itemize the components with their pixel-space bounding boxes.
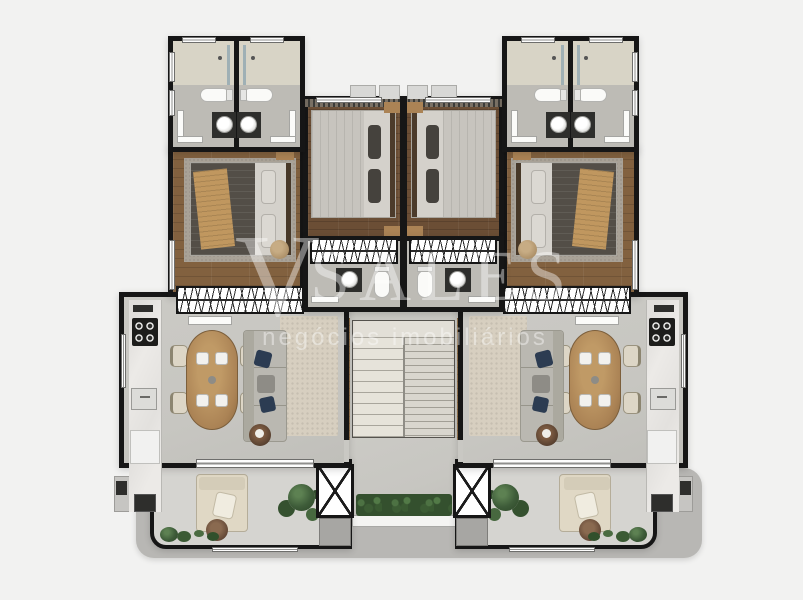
headboard bbox=[412, 111, 417, 217]
lounge-back-cushion bbox=[199, 477, 245, 490]
sofa-seat-line bbox=[521, 367, 553, 368]
balcony-railing-window bbox=[509, 547, 595, 552]
throw-pillow bbox=[259, 396, 277, 414]
round-side-table bbox=[206, 519, 228, 541]
floor-plan-render: V SALES negócios imobiliários bbox=[0, 0, 803, 600]
stair-flight-right bbox=[405, 337, 454, 437]
coffee-table-tray bbox=[542, 429, 551, 438]
toilet bbox=[417, 270, 433, 298]
place-setting bbox=[215, 394, 228, 407]
headboard bbox=[286, 163, 291, 255]
centerpiece bbox=[208, 376, 216, 384]
headboard bbox=[516, 163, 521, 255]
pouf bbox=[518, 240, 537, 259]
toilet-tank bbox=[417, 266, 433, 272]
throw-pillow bbox=[532, 375, 550, 393]
window bbox=[521, 37, 555, 43]
burner-icon bbox=[652, 322, 660, 330]
bed-pillow bbox=[426, 169, 439, 203]
stair-flight-left bbox=[353, 337, 404, 437]
sofa-seat-line bbox=[254, 367, 286, 368]
throw-pillow bbox=[257, 375, 275, 393]
toilet-tank bbox=[240, 89, 247, 101]
pouf bbox=[270, 240, 289, 259]
bed bbox=[311, 110, 396, 218]
area-rug bbox=[280, 316, 338, 436]
sink-faucet-icon bbox=[140, 396, 150, 398]
bath-shelf bbox=[311, 296, 339, 303]
window bbox=[121, 334, 126, 388]
console-sideboard bbox=[188, 316, 232, 325]
wardrobe-right bbox=[503, 286, 631, 314]
sofa-back bbox=[553, 331, 563, 441]
plant bbox=[288, 484, 315, 511]
shower-head-icon bbox=[251, 56, 255, 60]
throw-pillow bbox=[534, 349, 553, 368]
burner-icon bbox=[135, 322, 143, 330]
bed-pillow bbox=[426, 125, 439, 159]
sofa-back bbox=[244, 331, 254, 441]
bed-pillow bbox=[368, 169, 381, 203]
bath-counter bbox=[511, 136, 537, 143]
sliding-door-threshold bbox=[493, 459, 611, 468]
shower-glass bbox=[243, 45, 246, 85]
lounge-pillow bbox=[212, 491, 238, 520]
centerpiece bbox=[591, 376, 599, 384]
dining-chair bbox=[623, 392, 641, 414]
shaft-stub bbox=[456, 518, 488, 546]
burner-icon bbox=[663, 334, 671, 342]
toilet bbox=[374, 270, 390, 298]
stair-divider bbox=[403, 337, 405, 437]
shower-glass bbox=[561, 45, 564, 85]
place-setting bbox=[598, 394, 611, 407]
burner-icon bbox=[663, 322, 671, 330]
wardrobe-left bbox=[176, 286, 304, 314]
window bbox=[316, 97, 382, 103]
shower-head-icon bbox=[584, 56, 588, 60]
sink bbox=[341, 271, 358, 288]
window bbox=[425, 97, 491, 103]
staircase bbox=[352, 320, 455, 438]
kitchen-hood bbox=[133, 305, 153, 312]
kitchen-hood bbox=[654, 305, 674, 312]
bed-pillow bbox=[531, 170, 546, 204]
place-setting bbox=[196, 352, 209, 365]
place-setting bbox=[579, 352, 592, 365]
toilet-tank bbox=[560, 89, 567, 101]
shaft-x-left bbox=[316, 464, 354, 518]
plant-row bbox=[629, 527, 647, 542]
place-setting bbox=[598, 352, 611, 365]
window bbox=[169, 52, 175, 82]
burner-icon bbox=[146, 334, 154, 342]
window bbox=[182, 37, 216, 43]
sink-faucet-icon bbox=[657, 396, 667, 398]
window bbox=[632, 90, 638, 116]
cooktop bbox=[132, 318, 158, 346]
balcony-railing-window bbox=[212, 547, 298, 552]
window bbox=[632, 52, 638, 82]
dining-chair bbox=[623, 345, 641, 367]
fridge bbox=[647, 430, 677, 464]
place-setting bbox=[215, 352, 228, 365]
bath-shelf bbox=[468, 296, 496, 303]
burner-icon bbox=[135, 334, 143, 342]
nightstand bbox=[407, 102, 423, 113]
oven bbox=[134, 494, 156, 512]
door-opening bbox=[458, 440, 463, 462]
burner-icon bbox=[652, 334, 660, 342]
bath-counter bbox=[270, 136, 296, 143]
burner-icon bbox=[146, 322, 154, 330]
plant bbox=[492, 484, 519, 511]
nightstand bbox=[384, 102, 400, 113]
utility-equipment bbox=[680, 481, 691, 495]
walkway-strip bbox=[352, 515, 456, 527]
plant-row bbox=[160, 527, 178, 542]
throw-pillow bbox=[532, 396, 550, 414]
window bbox=[681, 334, 686, 388]
door-opening bbox=[344, 440, 349, 462]
headboard bbox=[390, 111, 395, 217]
area-rug bbox=[469, 316, 527, 436]
window bbox=[589, 37, 623, 43]
shower-head-icon bbox=[552, 56, 556, 60]
wardrobe-center-right bbox=[409, 238, 497, 264]
lounge-back-cushion bbox=[564, 477, 610, 490]
duvet bbox=[443, 111, 495, 217]
utility-equipment bbox=[116, 481, 127, 495]
toilet bbox=[243, 88, 273, 102]
sink bbox=[550, 116, 567, 133]
kitchen-sink bbox=[650, 388, 676, 410]
place-setting bbox=[579, 394, 592, 407]
console-sideboard bbox=[575, 316, 619, 325]
shower-head-icon bbox=[218, 56, 222, 60]
party-wall bbox=[400, 96, 407, 312]
shower-glass bbox=[227, 45, 230, 85]
window bbox=[169, 240, 175, 290]
hedge-planter bbox=[356, 494, 452, 516]
sliding-door-threshold bbox=[196, 459, 314, 468]
fridge bbox=[130, 430, 160, 464]
stair-landing bbox=[353, 321, 454, 337]
throw-pillow bbox=[253, 349, 272, 368]
oven bbox=[651, 494, 673, 512]
toilet bbox=[577, 88, 607, 102]
sink bbox=[574, 116, 591, 133]
wardrobe-center-left bbox=[310, 238, 398, 264]
sink bbox=[216, 116, 233, 133]
bath-counter bbox=[604, 136, 630, 143]
cooktop bbox=[649, 318, 675, 346]
shower-glass bbox=[577, 45, 580, 85]
duvet bbox=[312, 111, 364, 217]
lounge-pillow bbox=[574, 491, 600, 520]
window bbox=[632, 240, 638, 290]
toilet-tank bbox=[226, 89, 233, 101]
coffee-table-tray bbox=[255, 429, 264, 438]
shaft-x-right bbox=[453, 464, 491, 518]
window bbox=[169, 90, 175, 116]
bed-pillow bbox=[368, 125, 381, 159]
bed bbox=[411, 110, 496, 218]
shaft-stub bbox=[319, 518, 351, 546]
round-side-table bbox=[579, 519, 601, 541]
toilet-tank bbox=[374, 266, 390, 272]
sink bbox=[240, 116, 257, 133]
toilet-tank bbox=[574, 89, 581, 101]
bed-pillow bbox=[261, 170, 276, 204]
kitchen-sink bbox=[131, 388, 157, 410]
window bbox=[250, 37, 284, 43]
place-setting bbox=[196, 394, 209, 407]
sink bbox=[449, 271, 466, 288]
bath-counter bbox=[177, 136, 203, 143]
